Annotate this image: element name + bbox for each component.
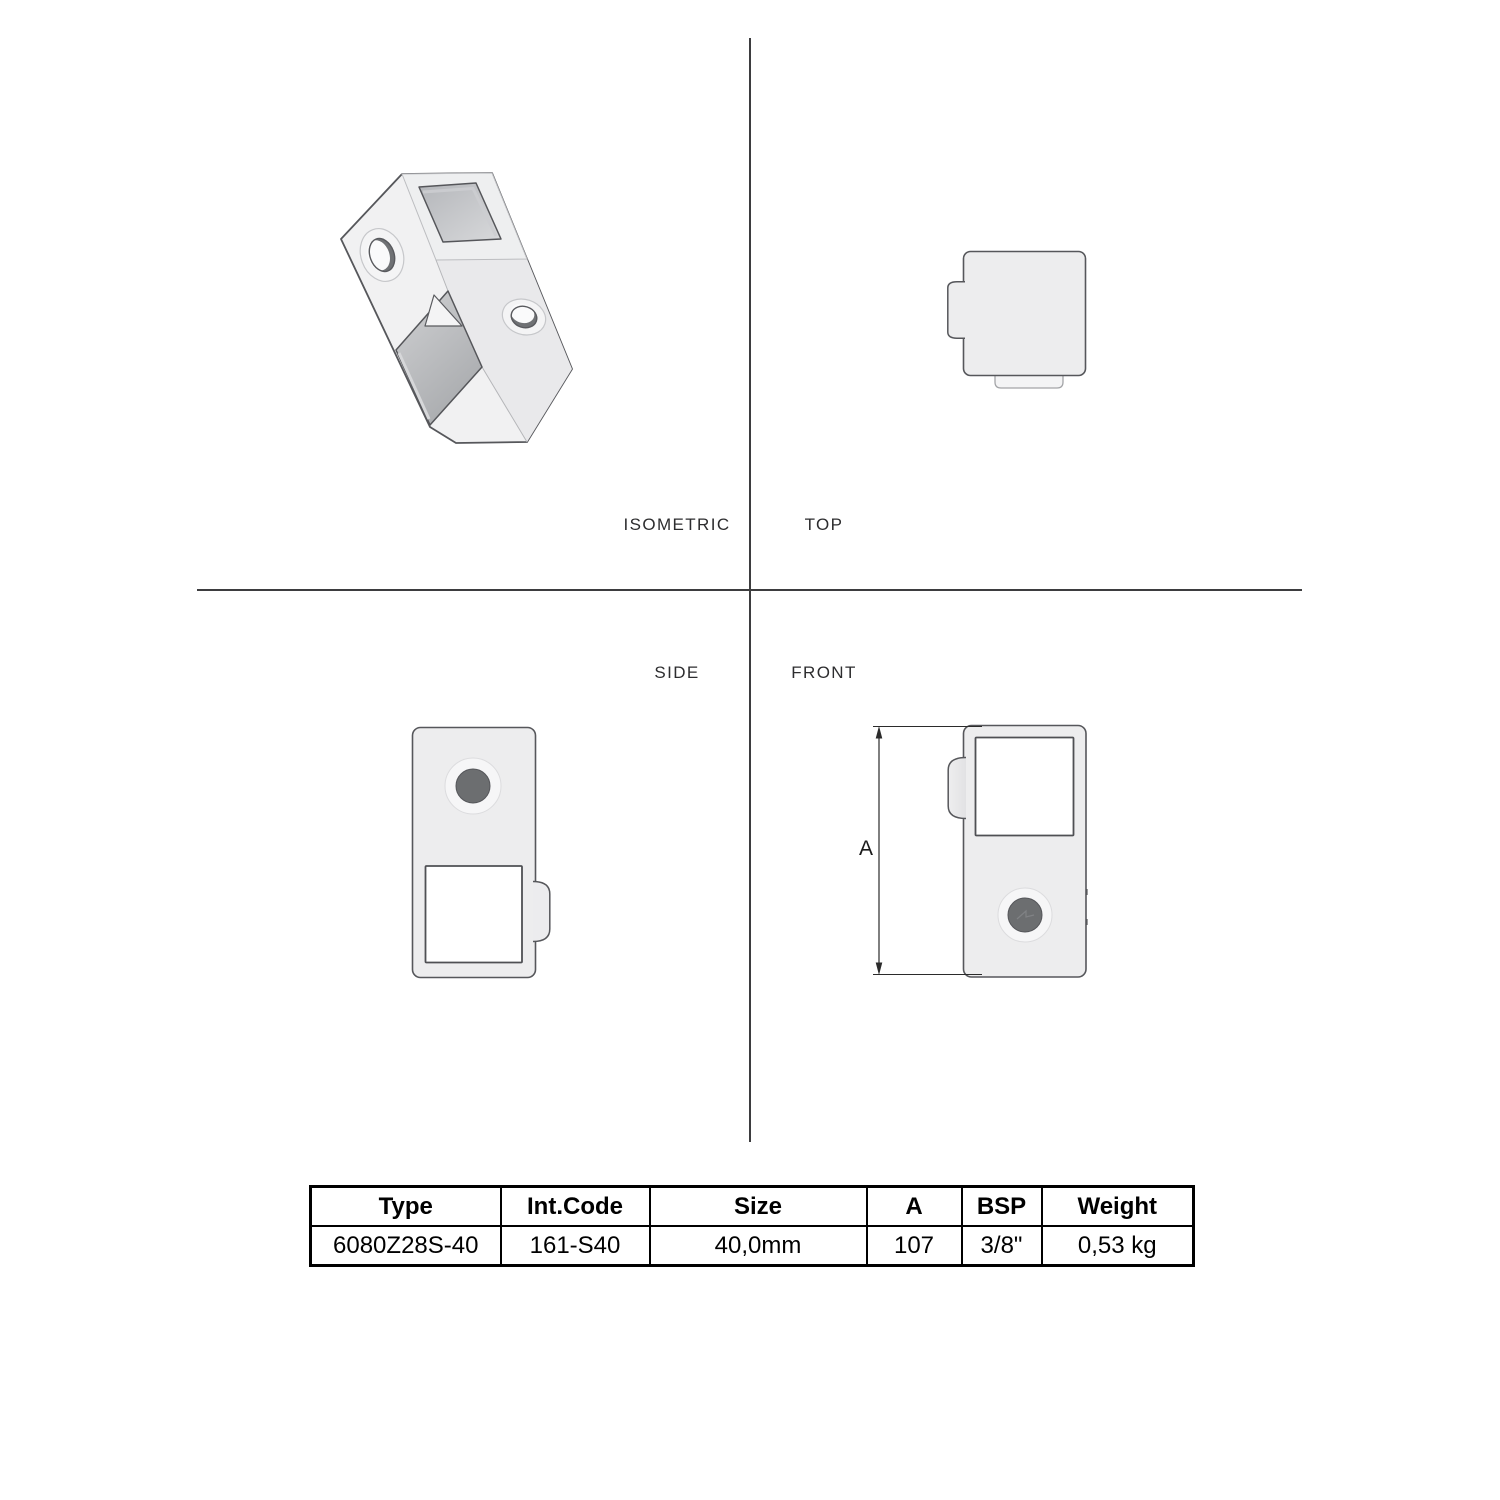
side-view-screw-hole [456,769,490,803]
front-view-square-socket [976,738,1074,836]
spec-value-weight: 0,53 kg [1042,1226,1194,1266]
front-view-label: FRONT [791,663,857,683]
spec-table: Type Int.Code Size A BSP Weight 6080Z28S… [309,1185,1195,1267]
spec-header-weight: Weight [1042,1187,1194,1227]
spec-header-type: Type [311,1187,501,1227]
spec-header-intcode: Int.Code [501,1187,650,1227]
dimension-a-label: A [859,837,873,861]
side-view-label: SIDE [654,663,699,683]
technical-drawing-svg [0,0,1500,1500]
spec-value-size: 40,0mm [650,1226,867,1266]
dimension-arrow-down [876,963,883,976]
spec-table-header-row: Type Int.Code Size A BSP Weight [311,1187,1194,1227]
top-view-body [964,252,1086,376]
spec-header-size: Size [650,1187,867,1227]
front-view-left-tab-fill [948,758,966,819]
front-view-drawing [948,726,1087,978]
spec-header-bsp: BSP [962,1187,1042,1227]
spec-table-value-row: 6080Z28S-40 161-S40 40,0mm 107 3/8" 0,53… [311,1226,1194,1266]
spec-value-intcode: 161-S40 [501,1226,650,1266]
isometric-view-label: ISOMETRIC [623,515,730,535]
side-view-square-socket [426,866,523,963]
spec-header-a: A [867,1187,962,1227]
crosshair-divider [197,38,1302,1142]
top-view-drawing [947,252,1086,389]
dimension-arrow-up [876,726,883,739]
side-view-right-tab-fill [533,882,550,942]
isometric-view-drawing [341,173,572,443]
top-view-label: TOP [805,515,844,535]
front-view-screw-hole [1008,898,1042,932]
side-view-drawing [413,728,550,978]
top-view-left-tab-fill [947,281,967,339]
spec-value-type: 6080Z28S-40 [311,1226,501,1266]
spec-value-a: 107 [867,1226,962,1266]
spec-value-bsp: 3/8" [962,1226,1042,1266]
technical-datasheet: ISOMETRIC TOP SIDE FRONT A Type Int.Code… [0,0,1500,1500]
